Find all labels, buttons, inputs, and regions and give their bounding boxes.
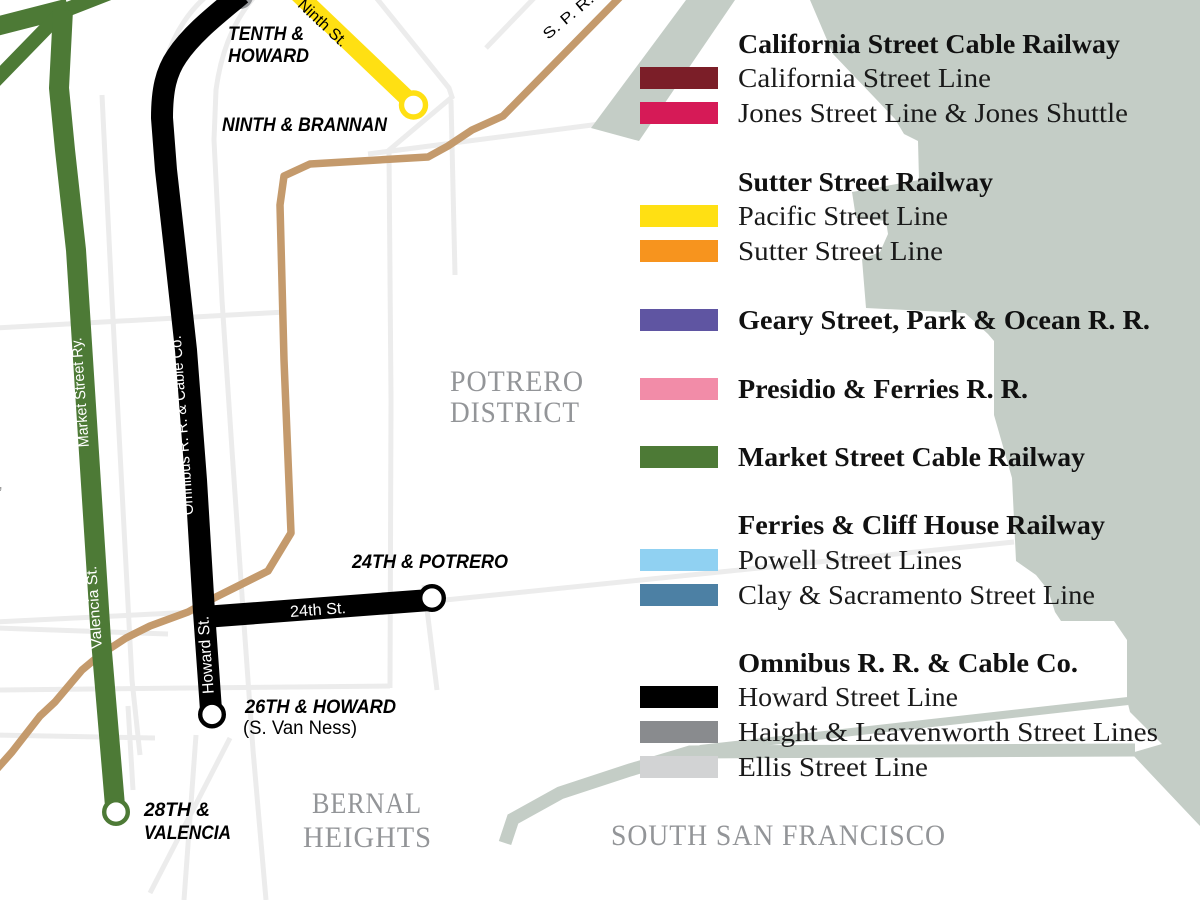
svg-text:Howard Street Line: Howard Street Line	[738, 682, 958, 712]
svg-text:TENTH &: TENTH &	[228, 24, 304, 45]
svg-text:Sutter Street Railway: Sutter Street Railway	[738, 167, 994, 197]
svg-text:DISTRICT: DISTRICT	[450, 396, 580, 429]
svg-text:POTRERO: POTRERO	[450, 365, 584, 398]
svg-text:Jones Street Line & Jones Shut: Jones Street Line & Jones Shuttle	[738, 98, 1128, 128]
svg-text:BERNAL: BERNAL	[312, 787, 422, 820]
svg-text:HEIGHTS: HEIGHTS	[303, 821, 432, 854]
svg-text:Omnibus R. R. & Cable Co.: Omnibus R. R. & Cable Co.	[738, 648, 1078, 678]
svg-text:Ellis Street Line: Ellis Street Line	[738, 752, 928, 782]
svg-text:California Street Cable Railwa: California Street Cable Railway	[738, 29, 1121, 59]
svg-text:Geary Street, Park & Ocean R.: Geary Street, Park & Ocean R. R.	[738, 305, 1150, 335]
svg-text:Presidio & Ferries R. R.: Presidio & Ferries R. R.	[738, 374, 1028, 404]
svg-text:26TH & HOWARD: 26TH & HOWARD	[244, 697, 396, 718]
svg-text:Pacific Street Line: Pacific Street Line	[738, 201, 948, 231]
svg-text:Clay & Sacramento Street Line: Clay & Sacramento Street Line	[738, 580, 1095, 610]
svg-text:24TH & POTRERO: 24TH & POTRERO	[351, 552, 508, 573]
svg-text:Market Street Cable Railway: Market Street Cable Railway	[738, 442, 1086, 472]
svg-text:Haight & Leavenworth Street Li: Haight & Leavenworth Street Lines	[738, 717, 1158, 747]
svg-text:Ferries & Cliff House Railway: Ferries & Cliff House Railway	[738, 510, 1106, 540]
svg-text:28TH &: 28TH &	[143, 800, 210, 821]
svg-text:”: ”	[0, 484, 2, 504]
svg-text:VALENCIA: VALENCIA	[144, 823, 231, 844]
svg-text:Powell Street Lines: Powell Street Lines	[738, 545, 962, 575]
svg-text:HOWARD: HOWARD	[228, 46, 309, 67]
svg-text:SOUTH SAN FRANCISCO: SOUTH SAN FRANCISCO	[611, 819, 946, 852]
svg-text:Sutter Street Line: Sutter Street Line	[738, 236, 943, 266]
svg-text:(S. Van Ness): (S. Van Ness)	[243, 718, 357, 739]
svg-text:California Street Line: California Street Line	[738, 63, 991, 93]
svg-text:NINTH & BRANNAN: NINTH & BRANNAN	[222, 115, 388, 136]
